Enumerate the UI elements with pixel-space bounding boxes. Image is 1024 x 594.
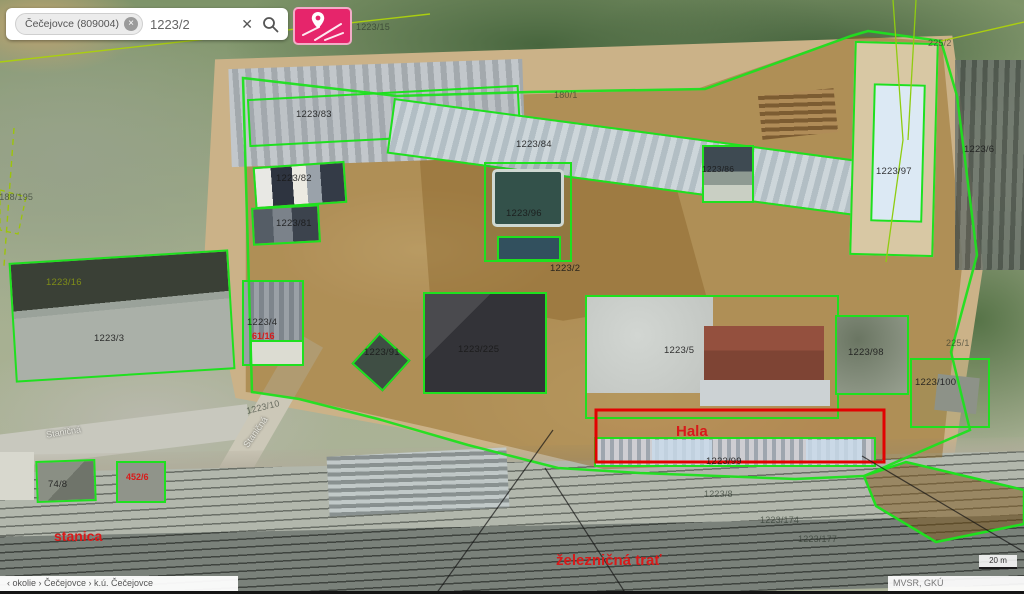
parcel-label-1223-82: 1223/82 xyxy=(276,173,312,184)
clear-search-icon[interactable]: ✕ xyxy=(239,16,255,33)
parcel-label-1223-174: 1223/174 xyxy=(760,515,799,525)
parcel-label-1223-100: 1223/100 xyxy=(915,377,956,388)
municipality-chip-label: Čečejovce (809004) xyxy=(25,18,119,30)
parcel-label-1223-16: 1223/16 xyxy=(46,277,82,288)
parcel-label-225-2: 225/2 xyxy=(928,38,952,48)
house-white-roof xyxy=(0,452,34,500)
parcel-outline-1223-86[interactable] xyxy=(702,145,754,203)
map-pin-icon xyxy=(301,11,345,41)
hala-roof-skylight-2 xyxy=(806,440,862,464)
house-number-label-61-16: 61/16 xyxy=(252,331,275,341)
parcel-label-1223-8: 1223/8 xyxy=(704,489,733,499)
parcel-label-1223-83: 1223/83 xyxy=(296,109,332,120)
map-viewport[interactable]: 1223/15 225/2 180/1 2188/195 1223/83 122… xyxy=(0,0,1024,594)
pipe-stacks xyxy=(327,447,510,516)
parcel-outline-1223-16[interactable] xyxy=(9,249,236,382)
map-locate-button[interactable] xyxy=(293,7,352,45)
parcel-label-1223-96: 1223/96 xyxy=(506,208,542,219)
parcel-label-180-1: 180/1 xyxy=(554,90,578,100)
parcel-label-74-8: 74/8 xyxy=(48,479,67,490)
chip-remove-icon[interactable]: × xyxy=(124,17,138,31)
roof-annex xyxy=(700,380,830,406)
parcel-label-1223-2: 1223/2 xyxy=(550,263,580,274)
parcel-label-225-1: 225/1 xyxy=(946,338,970,348)
scale-indicator: 20 m xyxy=(979,555,1017,569)
parcel-outline-house-452-6[interactable] xyxy=(116,461,166,503)
basin-annex xyxy=(497,236,561,261)
house-number-label-452-6: 452/6 xyxy=(126,472,149,482)
breadcrumb[interactable]: ‹ okolie › Čečejovce › k.ú. Čečejovce xyxy=(0,576,238,591)
parcel-label-1223-5: 1223/5 xyxy=(664,345,694,356)
parcel-outline-1223-225[interactable] xyxy=(423,292,547,394)
parcel-label-1223-177: 1223/177 xyxy=(798,534,837,544)
attribution: MVSR, GKÚ xyxy=(888,576,1024,591)
search-icon[interactable] xyxy=(262,16,279,33)
parcel-label-1223-225: 1223/225 xyxy=(458,344,499,355)
parcel-outline-1223-97-hall[interactable] xyxy=(870,83,926,222)
parcel-label-1223-3: 1223/3 xyxy=(94,333,124,344)
parcel-label-1223-15: 1223/15 xyxy=(356,22,390,32)
search-bar[interactable]: Čečejovce (809004) × 1223/2 ✕ xyxy=(6,8,288,40)
label-hala: Hala xyxy=(676,423,708,440)
municipality-chip[interactable]: Čečejovce (809004) × xyxy=(15,13,143,35)
parcel-label-1223-97: 1223/97 xyxy=(876,166,912,177)
parcel-label-1223-86: 1223/86 xyxy=(702,164,734,174)
parcel-label-1223-91: 1223/91 xyxy=(364,347,400,358)
parcel-label-1223-4: 1223/4 xyxy=(247,317,277,328)
hala-roof-skylight xyxy=(652,440,712,464)
parcel-label-1223-99: 1223/99 xyxy=(706,456,742,467)
search-input[interactable]: 1223/2 xyxy=(150,17,232,32)
parcel-label-2188-195: 2188/195 xyxy=(0,192,33,202)
parcel-label-1223-84: 1223/84 xyxy=(516,139,552,150)
parcel-label-1223-98: 1223/98 xyxy=(848,347,884,358)
red-roof-building xyxy=(704,326,824,380)
shed-outline[interactable] xyxy=(250,340,304,366)
neighbour-roof-east xyxy=(955,60,1024,270)
parcel-label-1223-6: 1223/6 xyxy=(964,144,994,155)
parcel-outline-1223-82[interactable] xyxy=(253,161,348,209)
label-stanica: stanica xyxy=(54,528,102,544)
label-zeleznicna-trat: železničná trať xyxy=(556,552,662,569)
timber-stacks xyxy=(758,88,838,140)
parcel-label-1223-81: 1223/81 xyxy=(276,218,312,229)
